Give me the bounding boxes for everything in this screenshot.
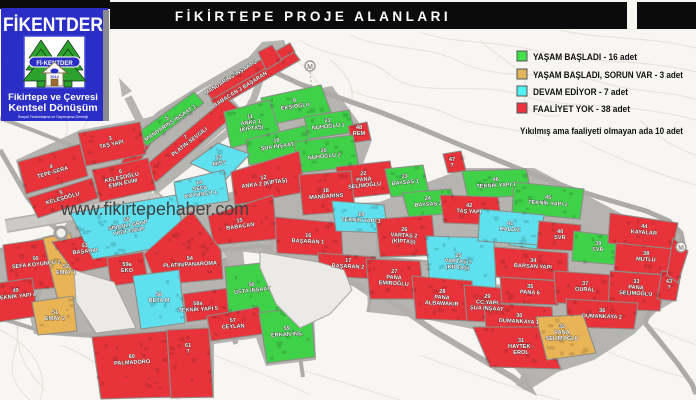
- svg-text:CEYLAN: CEYLAN: [222, 323, 245, 330]
- svg-text:HALDIZ: HALDIZ: [499, 226, 520, 233]
- svg-text:DEVAM EDİYOR - 7 adet: DEVAM EDİYOR - 7 adet: [533, 87, 628, 97]
- svg-text:?: ?: [186, 349, 190, 355]
- svg-text:SELİMOĞLU: SELİMOĞLU: [545, 334, 578, 342]
- svg-text:EKO: EKO: [121, 268, 134, 274]
- svg-text:?: ?: [667, 285, 671, 291]
- svg-text:M: M: [307, 64, 313, 71]
- svg-text:PANA 6: PANA 6: [520, 289, 540, 296]
- svg-text:EMAY 2: EMAY 2: [45, 316, 65, 322]
- svg-text:SVR: SVR: [592, 247, 604, 254]
- svg-text:GURAL: GURAL: [575, 286, 596, 293]
- svg-text:Yıkılmış ama faaliyeti olmayan: Yıkılmış ama faaliyeti olmayan ada 10 ad…: [520, 126, 684, 137]
- svg-text:(KİPTAŞ): (KİPTAŞ): [446, 263, 470, 271]
- svg-text:FAALİYET YOK - 38 adet: FAALİYET YOK - 38 adet: [533, 104, 630, 114]
- svg-text:FİKENTDER: FİKENTDER: [3, 15, 103, 36]
- svg-text:Sosyal Yardımlaşma ve Dayanışm: Sosyal Yardımlaşma ve Dayanışma Derneği: [18, 115, 88, 119]
- svg-text:FİKİRTEPE PROJE ALANLARI: FİKİRTEPE PROJE ALANLARI: [175, 9, 451, 24]
- svg-text:SVR: SVR: [554, 235, 566, 242]
- svg-text:YAŞAM BAŞLADI - 16 adet: YAŞAM BAŞLADI - 16 adet: [533, 52, 637, 62]
- svg-text:EROL: EROL: [513, 350, 529, 356]
- svg-text:BETA M: BETA M: [149, 298, 170, 304]
- svg-text:www.fikirtepehaber.com: www.fikirtepehaber.com: [60, 199, 249, 219]
- svg-text:M: M: [678, 245, 684, 252]
- svg-text:(KİPTAŞ): (KİPTAŞ): [392, 237, 416, 245]
- svg-text:2014: 2014: [50, 75, 59, 79]
- svg-text:Kentsel Dönüşüm: Kentsel Dönüşüm: [8, 102, 97, 114]
- svg-text:YAŞAM BAŞLADI, SORUN VAR - 3 a: YAŞAM BAŞLADI, SORUN VAR - 3 adet: [533, 70, 683, 80]
- svg-text:EMAY 1: EMAY 1: [56, 270, 76, 276]
- svg-text:MUTLU: MUTLU: [636, 256, 656, 263]
- svg-text:?: ?: [450, 163, 454, 169]
- svg-text:REM: REM: [353, 131, 366, 137]
